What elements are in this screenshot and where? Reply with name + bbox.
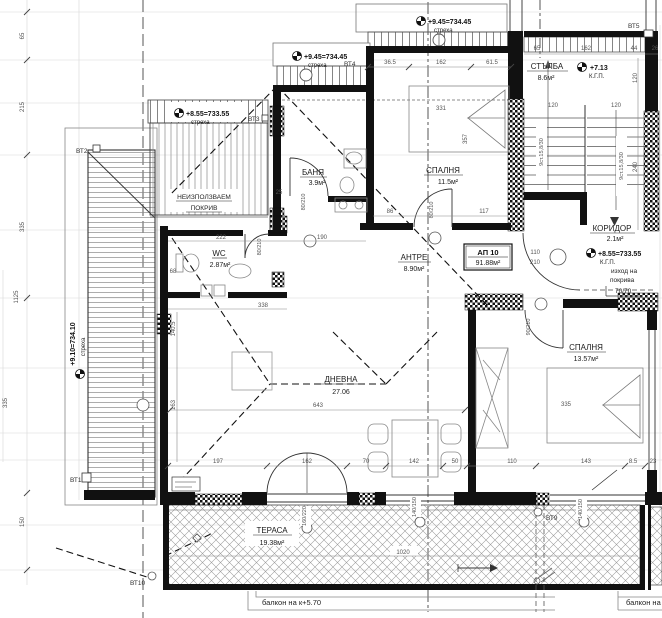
benchmark-bt5: ВТ5: [628, 23, 640, 30]
dim: 8.5: [629, 459, 638, 465]
bed-bedroom1: [409, 86, 509, 152]
dim: 1125: [14, 290, 20, 304]
door-label-bedroom2: 90/210: [526, 319, 532, 336]
window-label-1: 140/150: [412, 497, 418, 517]
door-label-wc: 80/210: [257, 239, 263, 256]
room-bedroom1-name: СПАЛНЯ: [426, 166, 460, 175]
dim: 335: [561, 402, 572, 408]
room-terrace-area: 19.38м²: [260, 540, 285, 547]
dim: 120: [548, 103, 559, 109]
dim: 1020: [396, 550, 410, 556]
dim: 162: [436, 60, 447, 66]
dim: 643: [313, 403, 324, 409]
top-gutter-band-right: [356, 4, 508, 49]
room-stairs-area: 8.6м²: [538, 75, 556, 82]
room-bath-name: БАНЯ: [302, 168, 324, 177]
floor-plan-drawing: БАНЯ 3.9м² СПАЛНЯ 11.5м² СТЪЛБА 8.6м² КО…: [0, 0, 662, 618]
room-roof-name: НЕИЗПОЛЗВАЕМ: [177, 194, 231, 201]
elevation-value: +8.55=733.55: [598, 251, 641, 258]
dim: 240: [633, 161, 639, 172]
elevation-stairs: +7.13 К.Г.П.: [578, 63, 608, 81]
dim: 222: [216, 235, 227, 241]
elevation-value: +9.10=734.10: [70, 322, 77, 365]
door-label-bedroom1: 80/210: [429, 202, 435, 219]
benchmark-bt2: ВТ2: [76, 148, 88, 155]
dim: 338: [258, 303, 269, 309]
dim: 110: [507, 459, 517, 465]
sill-annotation-box: [172, 477, 200, 491]
dim: 335: [20, 221, 26, 232]
door-bedroom2-terrace: [592, 470, 617, 490]
dim: 142: [409, 459, 420, 465]
dim: 23: [650, 459, 657, 465]
apartment-tag: АП 10 91.88м²: [464, 244, 512, 270]
roof-exit-line2: покрива: [610, 277, 635, 284]
room-living-name: ДНЕВНА: [325, 375, 359, 384]
elevation-sub: стреха: [308, 63, 327, 69]
room-bedroom1-area: 11.5м²: [438, 179, 459, 186]
balcony-caption-right: балкон на: [626, 598, 662, 607]
hall-door-height: 210: [530, 260, 541, 266]
window-label-3: 160/220: [302, 506, 308, 526]
elevation-value: +8.55=733.55: [186, 111, 229, 118]
dim: 50: [452, 459, 459, 465]
roof-exit-line1: изход на: [611, 268, 637, 275]
dim: 163: [171, 399, 177, 410]
dining-table: [368, 420, 461, 477]
roof-exit-size: 70/70: [615, 288, 632, 295]
dim: 117: [479, 209, 489, 215]
room-stairs-name: СТЪЛБА: [531, 62, 564, 71]
dim: 65: [534, 46, 541, 52]
dim: 70: [363, 459, 370, 465]
room-roof-name2: ПОКРИВ: [191, 205, 218, 212]
benchmark-bt10: ВТ10: [130, 580, 145, 587]
room-living-area: 27.06: [332, 389, 350, 396]
balcony-caption-left: балкон на к+5.70: [262, 598, 321, 607]
dim: 335: [3, 397, 9, 408]
benchmark-bt4: ВТ4: [344, 61, 356, 68]
room-hall-area: 8.90м²: [404, 266, 425, 273]
dim: 162: [581, 46, 592, 52]
elevation-value: +9.45=734.45: [304, 54, 347, 61]
dim: 65: [20, 32, 26, 39]
apartment-number: АП 10: [477, 248, 498, 257]
dim: 197: [213, 459, 224, 465]
benchmark-bt3: ВТ3: [248, 116, 260, 123]
dim: 120: [633, 72, 639, 83]
floor-plan-canvas: БАНЯ 3.9м² СПАЛНЯ 11.5м² СТЪЛБА 8.6м² КО…: [0, 0, 662, 618]
balcony-captions: балкон на к+5.70 балкон на: [262, 598, 662, 607]
elevation-sub: стреха: [81, 337, 87, 356]
dim: 190: [317, 235, 328, 241]
dim: 36.5: [384, 60, 396, 66]
room-hall-name: АНТРЕ: [401, 253, 428, 262]
door-label-bath: 80/210: [301, 194, 307, 211]
dim: 357: [463, 133, 469, 144]
elevation-value: +9.45=734.45: [428, 19, 471, 26]
elevation-sub: К.Г.П.: [600, 260, 616, 266]
dim: 143: [581, 459, 592, 465]
room-bedroom2-area: 13.57м²: [574, 356, 599, 363]
hall-door-width: 110: [530, 250, 540, 256]
elevation-roof-exit: +8.55=733.55 К.Г.П. изход на покрива 70/…: [587, 249, 643, 297]
dim: 150: [20, 516, 26, 527]
room-wc-name: WC: [212, 249, 226, 258]
room-corridor-area: 2.1м²: [607, 236, 625, 243]
room-bath-area: 3.9м²: [309, 180, 327, 187]
dim: 162: [302, 459, 313, 465]
benchmark-bt9: ВТ9: [546, 515, 558, 522]
window-label-2: 140/150: [578, 499, 584, 519]
benchmark-bt1: ВТ1: [70, 477, 82, 484]
elevation-value: +7.13: [590, 65, 608, 72]
elevation-top-right: +9.45=734.45 стреха: [417, 17, 472, 35]
apartment-area: 91.88м²: [476, 260, 501, 267]
bath-fixtures: [335, 149, 367, 212]
dim: 140.5: [171, 321, 177, 337]
dim: 44: [631, 46, 638, 52]
dim: 86: [387, 209, 394, 215]
dim: 215: [20, 101, 26, 112]
dim: 61.5: [486, 60, 498, 66]
room-bedroom2-name: СПАЛНЯ: [569, 343, 603, 352]
dim: 331: [436, 106, 447, 112]
elevation-sub: стреха: [191, 120, 210, 126]
room-terrace-name: ТЕРАСА: [256, 526, 288, 535]
dim: 26: [652, 46, 659, 52]
dim: 25: [276, 190, 283, 196]
elevation-sub: К.Г.П.: [589, 74, 605, 80]
stair-note-left: 9ст.15,8/30: [539, 138, 545, 166]
elevation-left-rotated: +9.10=734.10 стреха: [70, 322, 87, 378]
room-corridor-name: КОРИДОР: [593, 224, 632, 233]
room-wc-area: 2.87м²: [210, 262, 231, 269]
dim: 68: [170, 269, 177, 275]
dim: 120: [611, 103, 622, 109]
elevation-sub: стреха: [434, 28, 453, 34]
stair-note-right: 9ст.15,8/30: [619, 152, 625, 180]
